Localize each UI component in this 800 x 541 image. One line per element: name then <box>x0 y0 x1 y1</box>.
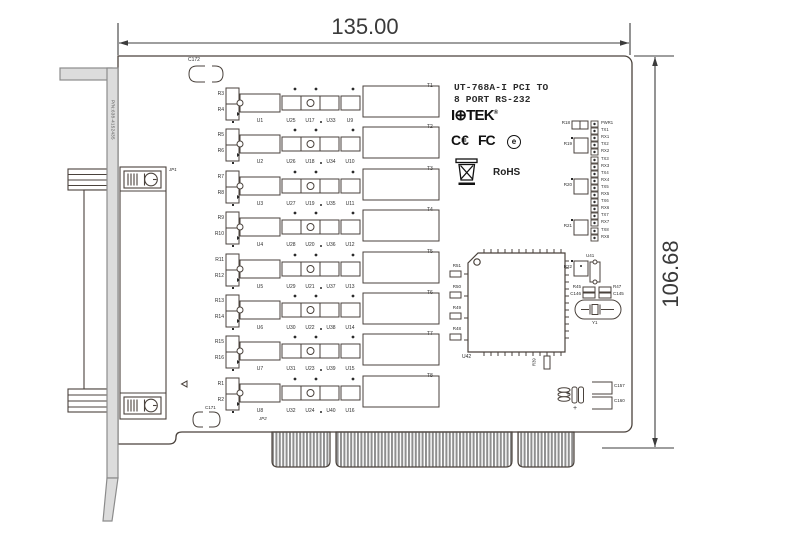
transformer-ref: T3 <box>427 167 433 172</box>
ic-ref: U14 <box>341 326 359 331</box>
transformer-ref: T2 <box>427 125 433 130</box>
height-dimension-label: 106.68 <box>660 229 682 319</box>
led-label: TX6 <box>601 199 609 203</box>
led-label: TX8 <box>601 228 609 232</box>
main-chip-qfp <box>464 249 569 356</box>
cap-ref: C171 <box>205 406 216 411</box>
res-ref: R48 <box>443 327 461 332</box>
ic-ref: U15 <box>341 367 359 372</box>
res-ref: R47 <box>613 285 621 290</box>
fcc-mark: FC <box>478 133 495 147</box>
rohs-label: RoHS <box>493 168 520 178</box>
ic-ref: U40 <box>322 409 340 414</box>
ic-ref: U2 <box>238 160 282 165</box>
led-label: TX4 <box>601 171 609 175</box>
res-ref: R51 <box>443 264 461 269</box>
res-ref: R19 <box>556 142 572 147</box>
jumper-ref: JP1 <box>169 168 177 173</box>
transformer-ref: T1 <box>427 84 433 89</box>
res-ref: R14 <box>206 315 224 320</box>
led-column <box>591 121 598 241</box>
res-ref: R10 <box>206 232 224 237</box>
ic-row-1-labels: R3R4U1U25U17U33U9T1 <box>208 86 444 128</box>
cap-ref: C146 <box>564 292 581 297</box>
bracket-part-number: P/N:638-4152435 <box>110 100 115 140</box>
cap-ref: C160 <box>614 399 625 404</box>
globe-icon: ⊕ <box>454 107 466 124</box>
ic-ref: U42 <box>462 355 471 360</box>
led-label: RX5 <box>601 192 609 196</box>
logo-text: TEK <box>466 107 494 124</box>
res-ref: R7 <box>206 175 224 180</box>
transformer-ref: T8 <box>427 374 433 379</box>
ic-ref: U21 <box>301 285 319 290</box>
res-ref: R21 <box>556 224 572 229</box>
ic-ref: U34 <box>322 160 340 165</box>
res-ref: R13 <box>206 299 224 304</box>
led-label: RX1 <box>601 135 609 139</box>
res-ref: R4 <box>206 108 224 113</box>
led-label: TX1 <box>601 128 609 132</box>
transformer-ref: T5 <box>427 250 433 255</box>
ic-ref: U41 <box>586 254 594 259</box>
db-connector-board <box>120 167 166 419</box>
ic-row-2-labels: R5R6U2U26U18U34U10T2 <box>208 127 444 169</box>
led-label: RX7 <box>601 220 609 224</box>
led-label: RX4 <box>601 178 609 182</box>
polarity-mark: + <box>573 405 577 412</box>
ic-ref: U39 <box>322 367 340 372</box>
res-ref: R1 <box>206 382 224 387</box>
res-ref: R49 <box>443 306 461 311</box>
ic-ref: U37 <box>322 285 340 290</box>
led-label: RX2 <box>601 149 609 153</box>
ic-row-7-labels: R15R16U7U31U23U39U15T7 <box>208 334 444 376</box>
ic-ref: U30 <box>282 326 300 331</box>
res-ref: R16 <box>206 356 224 361</box>
ic-ref: U20 <box>301 243 319 248</box>
ic-row-4-labels: R9R10U4U28U20U36U12T4 <box>208 210 444 252</box>
ic-ref: U19 <box>301 202 319 207</box>
transformer-ref: T6 <box>427 291 433 296</box>
cap-ref: C157 <box>614 384 625 389</box>
res-ref: R39 <box>533 358 537 366</box>
registered-mark: ® <box>494 110 498 116</box>
ic-ref: U11 <box>341 202 359 207</box>
ic-ref: U4 <box>238 243 282 248</box>
ic-ref: U3 <box>238 202 282 207</box>
led-label: TX5 <box>601 185 609 189</box>
res-ref: R5 <box>206 133 224 138</box>
ce-mark: C€ <box>451 133 469 147</box>
res-ref: R11 <box>206 258 224 263</box>
led-label: RX8 <box>601 235 609 239</box>
width-dimension-label: 135.00 <box>310 16 420 38</box>
ic-ref: U31 <box>282 367 300 372</box>
pcb-drawing-canvas: 135.00 106.68 P/N:638-4152435 UT-768A-I … <box>0 0 800 541</box>
ic-ref: U7 <box>238 367 282 372</box>
e-mark: e <box>507 135 521 149</box>
edge-connector-fingers <box>272 432 574 467</box>
ic-row-3-labels: R7R8U3U27U19U35U11T3 <box>208 169 444 211</box>
res-ref: R8 <box>206 191 224 196</box>
polarity-mark: + <box>566 391 570 398</box>
ic-ref: U32 <box>282 409 300 414</box>
led-label: TX3 <box>601 157 609 161</box>
ic-ref: U9 <box>341 119 359 124</box>
ic-ref: U25 <box>282 119 300 124</box>
ic-ref: U10 <box>341 160 359 165</box>
resistor-r39 <box>544 356 550 369</box>
ic-ref: U33 <box>322 119 340 124</box>
ic-ref: U27 <box>282 202 300 207</box>
board-title-line1: UT-768A-I PCI TO <box>454 83 548 93</box>
ic-ref: U8 <box>238 409 282 414</box>
res-ref: R22 <box>556 265 572 270</box>
db-connector-external <box>68 169 110 412</box>
res-ref: R18 <box>552 121 570 126</box>
res-ref: R6 <box>206 149 224 154</box>
jackscrew-bottom <box>124 397 161 414</box>
res-ref: R20 <box>556 183 572 188</box>
ic-ref: U28 <box>282 243 300 248</box>
ic-ref: U29 <box>282 285 300 290</box>
ic-ref: U13 <box>341 285 359 290</box>
res-ref: R2 <box>206 398 224 403</box>
ic-ref: U26 <box>282 160 300 165</box>
utek-logo: I⊕TEK® <box>451 108 498 123</box>
ic-ref: U17 <box>301 119 319 124</box>
res-ref: R15 <box>206 340 224 345</box>
transformer-ref: T4 <box>427 208 433 213</box>
board-title-line2: 8 PORT RS-232 <box>454 95 531 105</box>
ic-ref: U18 <box>301 160 319 165</box>
ic-row-8-labels: R1R2U8U32U24U40U16T8 <box>208 376 444 418</box>
res-ref: R9 <box>206 216 224 221</box>
ic-ref: U12 <box>341 243 359 248</box>
res-ref: R50 <box>443 285 461 290</box>
res-ref: R12 <box>206 274 224 279</box>
ic-ref: U1 <box>238 119 282 124</box>
res-ref: R45 <box>568 285 581 290</box>
ic-ref: U6 <box>238 326 282 331</box>
res-ref: R3 <box>206 92 224 97</box>
ic-row-5-labels: R11R12U5U29U21U37U13T5 <box>208 252 444 294</box>
ic-ref: U16 <box>341 409 359 414</box>
led-label: PWR1 <box>601 121 613 125</box>
cap-ref: C172 <box>188 58 200 63</box>
jackscrew-top <box>124 171 161 188</box>
jumper-ref: JP2 <box>259 417 267 422</box>
crystal-ref: Y1 <box>592 321 598 326</box>
ic-ref: U22 <box>301 326 319 331</box>
led-label: RX3 <box>601 164 609 168</box>
cap-ref: C145 <box>613 292 624 297</box>
ic-ref: U36 <box>322 243 340 248</box>
transformer-ref: T7 <box>427 332 433 337</box>
led-label: TX7 <box>601 213 609 217</box>
ic-ref: U24 <box>301 409 319 414</box>
ic-ref: U23 <box>301 367 319 372</box>
ic-row-6-labels: R13R14U6U30U22U38U14T6 <box>208 293 444 335</box>
ic-ref: U35 <box>322 202 340 207</box>
led-label: RX6 <box>601 206 609 210</box>
ic-ref: U5 <box>238 285 282 290</box>
led-label: TX2 <box>601 142 609 146</box>
ic-ref: U38 <box>322 326 340 331</box>
